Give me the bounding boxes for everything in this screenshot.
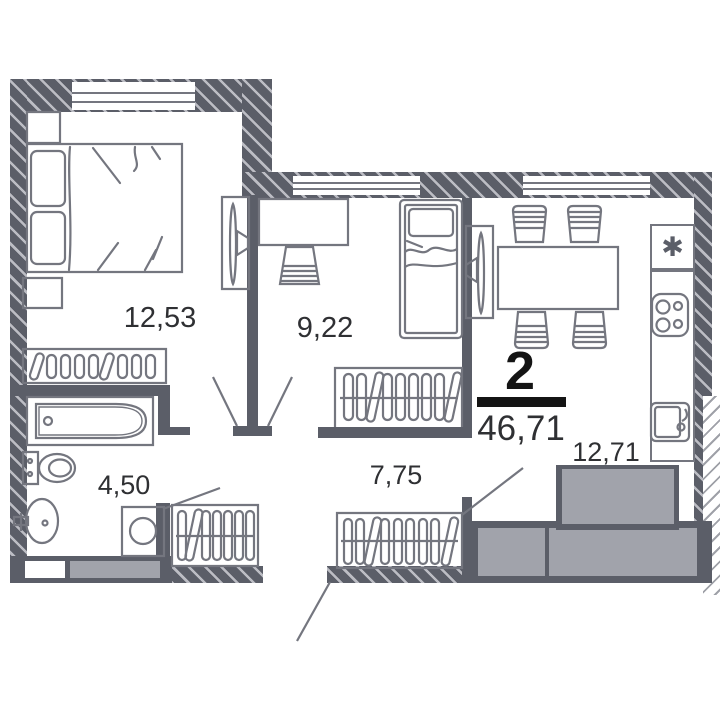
window-room [293, 176, 420, 195]
chair [573, 312, 606, 348]
window-frame-line [72, 101, 195, 103]
window-frame-line [523, 182, 650, 184]
door-swing-entry [297, 582, 330, 641]
kitchen-gray-block [562, 469, 674, 524]
wardrobe-hall-middle [337, 513, 462, 568]
bathroom-bottom-niche [25, 561, 65, 578]
double-bed [27, 144, 182, 272]
kitchen-counter [650, 270, 695, 462]
pillow [31, 151, 65, 206]
floor-plan: ✱ 12,53 9,22 4,50 7,75 12,71 2 46,71 [0, 0, 720, 720]
dining-table [498, 247, 618, 309]
apartment-type-label: 2 [470, 340, 570, 402]
wall-left [10, 79, 27, 583]
bathroom-bottom-duct [70, 561, 160, 578]
bathtub [27, 397, 153, 445]
area-label-bathroom: 4,50 [64, 470, 184, 501]
window-frame-line [72, 92, 195, 94]
area-label-hallway: 7,75 [336, 460, 456, 491]
wall-bedroom-bathroom [10, 385, 170, 396]
door-swing-room [268, 377, 292, 426]
window-kitchen [523, 176, 650, 195]
area-label-bedroom: 12,53 [100, 302, 220, 335]
bottom-gray-block-left [478, 528, 545, 576]
bottom-gray-block-right [549, 528, 697, 576]
chair [568, 206, 601, 242]
wall-kitchen-divider-upper [462, 198, 472, 438]
wall-bathroom-hall-upper [158, 385, 170, 435]
wall-door-stub [233, 426, 272, 436]
total-area-rule [477, 397, 566, 407]
wall-step [242, 79, 272, 174]
pillow [31, 212, 65, 264]
nightstand-top [27, 112, 60, 143]
wall-bottom-hall-left [158, 566, 263, 583]
fridge-symbol: ✱ [661, 232, 684, 263]
wardrobe-hall-left [172, 505, 258, 566]
chair [513, 206, 546, 242]
pillow [409, 209, 453, 236]
area-label-room: 9,22 [265, 312, 385, 345]
wardrobe-bedroom [23, 349, 166, 383]
desk [259, 199, 348, 245]
total-area-label: 46,71 [468, 409, 574, 449]
wall-bedroom-room-divider [247, 195, 258, 426]
wall-kitchen-divider-lower [462, 497, 472, 583]
single-bed [400, 200, 462, 338]
wardrobe-room [335, 368, 462, 427]
wall-bathroom-stub [170, 427, 190, 435]
nightstand-bottom [23, 278, 62, 308]
window-frame-line [293, 182, 420, 184]
fridge-icon: ✱ [650, 224, 695, 270]
window-bedroom [72, 82, 195, 110]
window-frame-line [293, 188, 420, 190]
window-frame-line [523, 188, 650, 190]
door-swing-bedroom [213, 377, 237, 426]
wall-room-hall [318, 427, 467, 438]
tv-bedroom [222, 197, 249, 289]
desk-chair [280, 247, 319, 284]
wall-bottom-hall-right [327, 566, 472, 583]
